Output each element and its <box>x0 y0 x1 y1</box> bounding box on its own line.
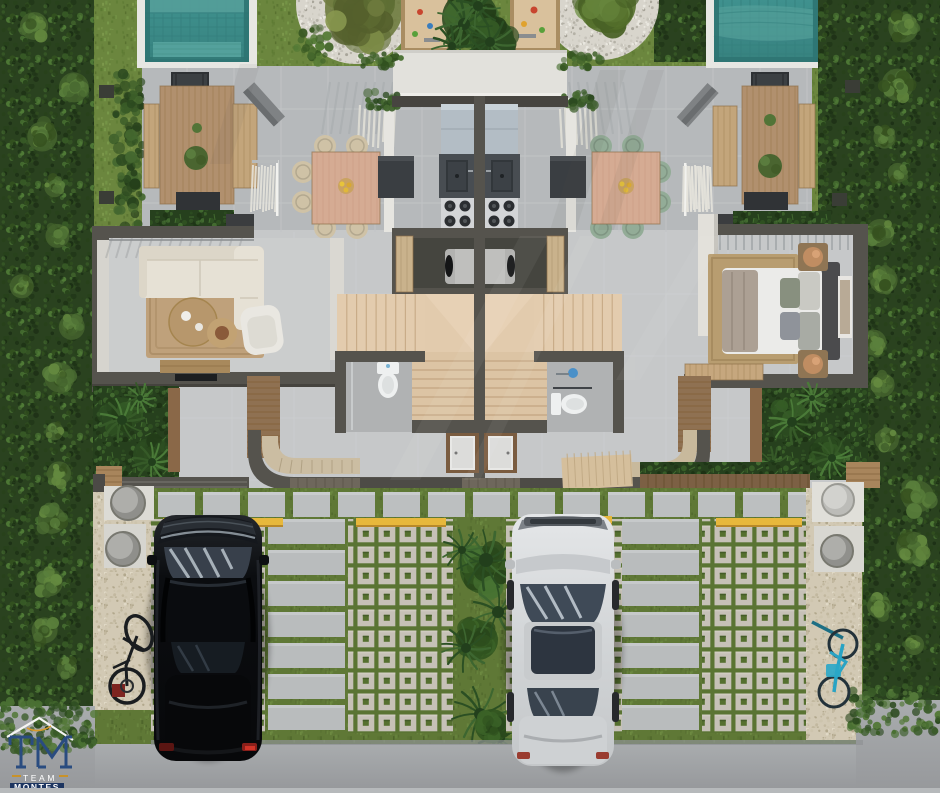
svg-text:MONTES: MONTES <box>14 782 60 788</box>
